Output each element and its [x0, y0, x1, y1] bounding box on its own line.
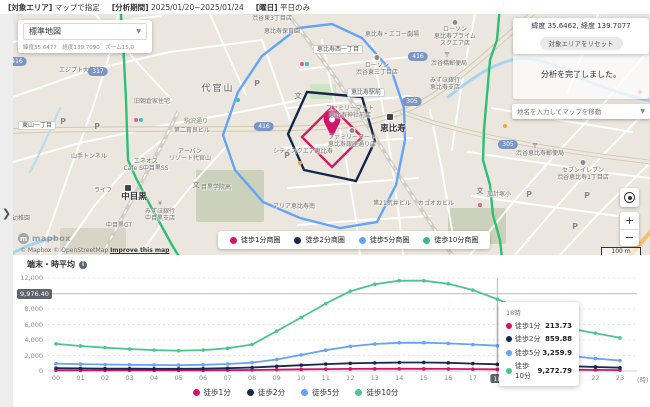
legend-dot-icon	[301, 389, 308, 396]
x-tick-label[interactable]: 17	[469, 374, 477, 382]
map-scale-bar: 100 m	[601, 247, 641, 255]
x-tick-label[interactable]: 09	[273, 374, 281, 382]
chevron-down-icon: ▼	[136, 28, 141, 35]
filter-bar: [対象エリア] マップで指定[分析期間] 2025/01/20~2025/01/…	[0, 0, 650, 14]
legend-dot-icon	[294, 237, 301, 244]
map-legend-item: 徒歩10分商圏	[423, 235, 478, 245]
x-tick-label[interactable]: 14	[395, 374, 403, 382]
legend-dot-icon	[423, 237, 430, 244]
x-tick-label[interactable]: 00	[52, 374, 60, 382]
improve-map-link[interactable]: Improve this map	[110, 247, 169, 254]
y-tick-label: 4,000	[15, 336, 43, 344]
chart-legend-item[interactable]: 徒歩10分	[355, 387, 398, 398]
y-tick-label: 8,000	[15, 305, 43, 313]
place-search-input[interactable]	[512, 108, 640, 116]
x-tick-label[interactable]: 02	[101, 374, 109, 382]
filter-item: [対象エリア] マップで指定	[8, 2, 100, 13]
legend-dot-icon	[359, 237, 366, 244]
mapbox-logo: m mapbox	[18, 233, 71, 244]
tooltip-row: 徒歩2分859.88	[506, 334, 572, 344]
mapbox-logo-icon: m	[18, 233, 29, 244]
app: [対象エリア] マップで指定[分析期間] 2025/01/20~2025/01/…	[0, 0, 650, 407]
chevron-down-icon: ▼	[640, 108, 650, 115]
legend-dot-icon	[506, 336, 512, 342]
map-legend-item: 徒歩2分商圏	[294, 235, 344, 245]
analysis-complete-toast: 分析を完了しました。	[513, 49, 649, 99]
sidebar-expand-toggle[interactable]: ❯	[0, 202, 13, 224]
map-zoom-controls: + −	[620, 212, 639, 246]
tooltip-hour: 18時	[506, 307, 572, 317]
target-area-panel: 緯度 35.6462, 経度 139.7077 対象エリアをリセット	[513, 18, 649, 54]
chart-legend-item[interactable]: 徒歩1分	[193, 387, 231, 398]
attribution-text: © Mapbox © OpenStreetMap	[20, 247, 110, 254]
map-style-panel: 標準地図 ▼ 緯度35.6477 経度139.7090 ズーム15.0	[18, 20, 152, 53]
map-style-value: 標準地図	[29, 26, 61, 37]
geolocate-button[interactable]	[620, 188, 639, 207]
legend-dot-icon	[230, 237, 237, 244]
chart-tooltip: 18時 徒歩1分213.73徒歩2分859.88徒歩5分3,259.9徒歩10分…	[499, 302, 579, 386]
geolocate-icon	[624, 192, 635, 203]
x-tick-label[interactable]: 13	[371, 374, 379, 382]
map-attribution: © Mapbox © OpenStreetMap Improve this ma…	[20, 247, 169, 254]
filter-item: [分析期間] 2025/01/20~2025/01/24	[112, 2, 244, 13]
tooltip-row: 徒歩10分9,272.79	[506, 361, 572, 381]
x-tick-label[interactable]: 06	[199, 374, 207, 382]
legend-dot-icon	[506, 350, 512, 356]
x-tick-label[interactable]: 16	[444, 374, 452, 382]
y-tick-label: 0	[15, 367, 43, 375]
x-tick-label[interactable]: 05	[174, 374, 182, 382]
tooltip-row: 徒歩5分3,259.9	[506, 348, 572, 358]
max-value-badge: 9,976.40	[17, 289, 52, 299]
x-tick-label[interactable]: 11	[322, 374, 330, 382]
map-legend-item: 徒歩1分商圏	[230, 235, 280, 245]
chart-section: 端末・時平均 i 9,976.40 12,0008,0006,0004,0002…	[13, 255, 650, 407]
x-tick-label[interactable]: 12	[346, 374, 354, 382]
x-tick-label[interactable]: 23	[616, 374, 624, 382]
sidebar-strip: ❯	[0, 14, 14, 407]
map-legend-item: 徒歩5分商圏	[359, 235, 409, 245]
x-tick-label[interactable]: 15	[420, 374, 428, 382]
target-coords: 緯度 35.6462, 経度 139.7077	[513, 21, 649, 31]
mapbox-logo-word: mapbox	[32, 234, 71, 243]
legend-dot-icon	[355, 389, 362, 396]
x-tick-label[interactable]: 01	[76, 374, 84, 382]
tooltip-row: 徒歩1分213.73	[506, 321, 572, 331]
x-axis-unit: (時)	[637, 374, 649, 384]
legend-dot-icon	[193, 389, 200, 396]
x-tick-label[interactable]: 04	[150, 374, 158, 382]
place-search-box: ▼	[512, 104, 650, 119]
x-tick-label[interactable]: 07	[223, 374, 231, 382]
filter-item: [曜日] 平日のみ	[256, 2, 310, 13]
map-canvas[interactable]: 渋谷代官山郵便局エジプト大使館代官山旧朝倉家住宅第二育良ビル山手トンネルアーバン…	[13, 14, 650, 255]
y-tick-label: 12,000	[15, 274, 43, 282]
map-legend: 徒歩1分商圏徒歩2分商圏徒歩5分商圏徒歩10分商圏	[218, 231, 490, 249]
map-style-select[interactable]: 標準地図 ▼	[23, 23, 147, 40]
x-tick-label[interactable]: 03	[125, 374, 133, 382]
chart-legend: 徒歩1分徒歩2分徒歩5分徒歩10分	[13, 387, 650, 398]
reset-area-button[interactable]: 対象エリアをリセット	[540, 37, 623, 50]
zoom-out-button[interactable]: −	[620, 230, 639, 247]
chart-legend-item[interactable]: 徒歩5分	[301, 387, 339, 398]
x-tick-label[interactable]: 08	[248, 374, 256, 382]
legend-dot-icon	[506, 323, 512, 329]
zoom-in-button[interactable]: +	[620, 212, 639, 230]
x-tick-label[interactable]: 10	[297, 374, 305, 382]
legend-dot-icon	[247, 389, 254, 396]
map-coords-meta: 緯度35.6477 経度139.7090 ズーム15.0	[23, 42, 137, 50]
y-tick-label: 2,000	[15, 352, 43, 360]
x-tick-label[interactable]: 22	[591, 374, 599, 382]
legend-dot-icon	[506, 368, 512, 374]
y-tick-label: 6,000	[15, 321, 43, 329]
chart-legend-item[interactable]: 徒歩2分	[247, 387, 285, 398]
